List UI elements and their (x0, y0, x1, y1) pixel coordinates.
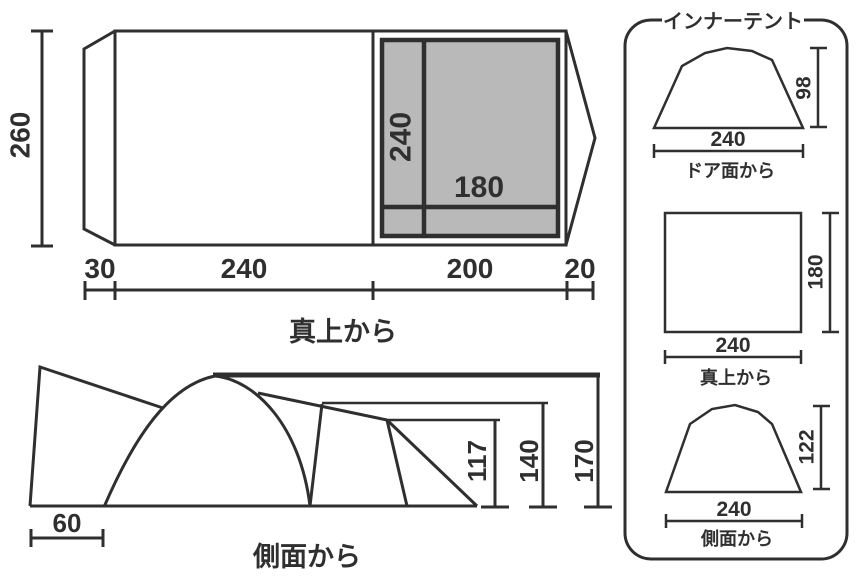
inner-width-label: 180 (454, 171, 504, 204)
inner-door-view-caption: ドア面から (685, 161, 775, 181)
inner-side-width-label: 240 (716, 498, 751, 521)
inner-top-height-label: 180 (805, 254, 828, 289)
inner-depth-label: 240 (385, 112, 418, 162)
dim-117-label: 117 (462, 440, 492, 482)
side-view-caption: 側面から (252, 542, 361, 572)
dim-30-label: 30 (84, 253, 115, 284)
inner-tent-panel-title: インナーテント (663, 11, 803, 33)
side-view-outline (30, 367, 477, 507)
side-view-diagram: 117 140 170 60 側面から (30, 367, 612, 572)
dim-20-label: 20 (564, 253, 595, 284)
inner-top-width-label: 240 (715, 334, 750, 357)
inner-side-view-caption: 側面から (700, 528, 773, 549)
dim-170-label: 170 (569, 439, 599, 482)
dim-200-label: 200 (447, 253, 494, 284)
inner-tent-panel: インナーテント 240 98 ドア面から 240 180 真上から (625, 6, 847, 559)
diagram-svg: 260 240 180 30 240 200 20 真上から (0, 0, 864, 576)
inner-top-view-caption: 真上から (700, 367, 772, 388)
top-view-caption: 真上から (289, 317, 397, 347)
inner-side-height-label: 122 (796, 429, 819, 464)
dim-240-label: 240 (221, 253, 268, 284)
top-view-width-dimension (85, 281, 593, 300)
top-view-diagram: 260 240 180 30 240 200 20 真上から (5, 31, 596, 347)
dim-140-label: 140 (514, 439, 544, 482)
dim-60-label: 60 (53, 508, 82, 538)
inner-door-height-label: 98 (793, 76, 816, 100)
inner-door-width-label: 240 (710, 128, 745, 151)
dim-260-label: 260 (5, 112, 36, 159)
tent-dimension-diagram: 260 240 180 30 240 200 20 真上から (0, 0, 864, 576)
